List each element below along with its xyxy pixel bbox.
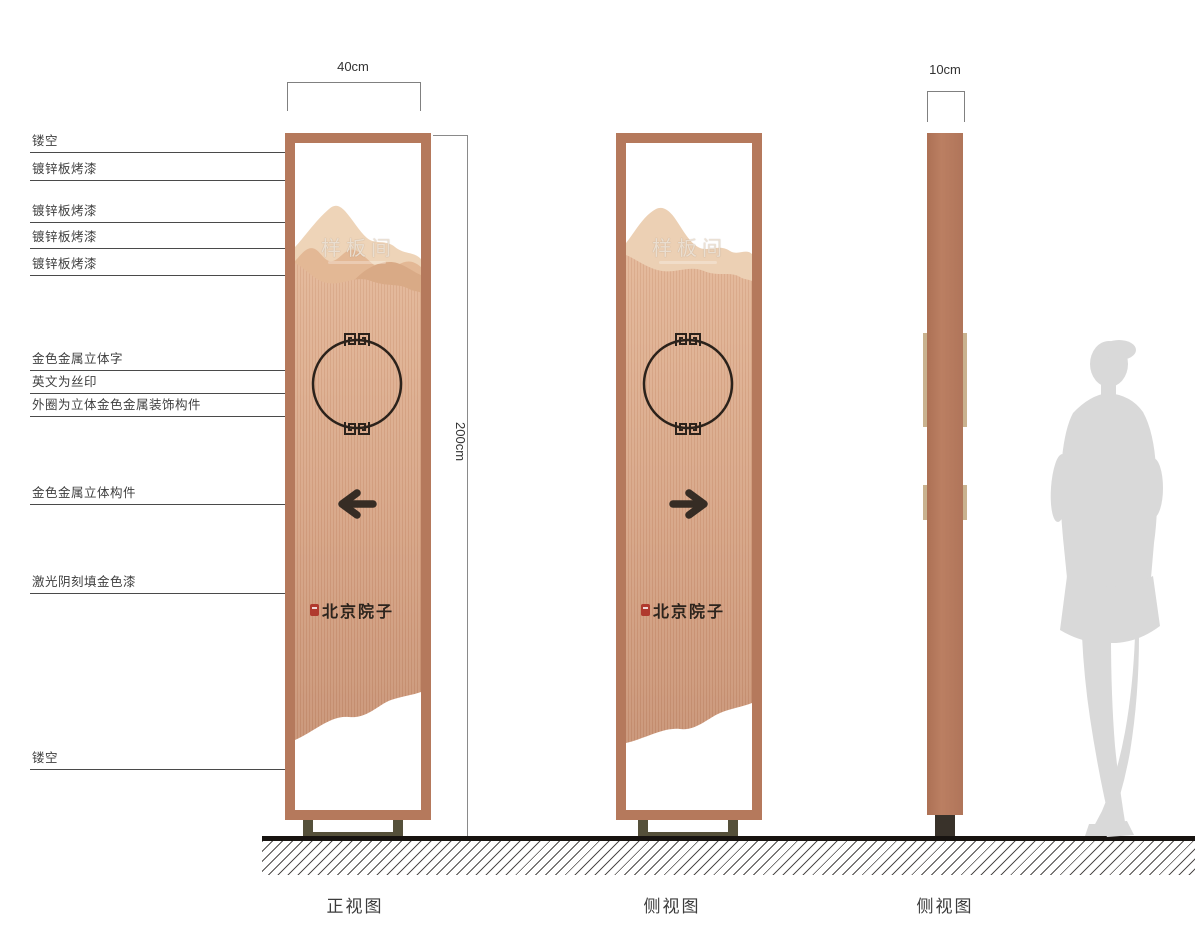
callout-galvanized-1: 镀锌板烤漆 xyxy=(30,158,286,181)
front-view-sign-frame: 样板间 北京院子 xyxy=(285,133,431,820)
caption-side-view-2: 侧视图 xyxy=(905,892,985,917)
caption-side-view-1: 侧视图 xyxy=(632,892,712,917)
profile-arrow-protrusion-right xyxy=(963,485,967,520)
callout-label: 镀锌板烤漆 xyxy=(32,226,97,245)
profile-ring-protrusion-right xyxy=(963,333,967,427)
side-room-name: 样板间 xyxy=(652,232,727,261)
callout-hollow-bottom: 镂空 xyxy=(30,747,305,770)
human-silhouette-figure xyxy=(1035,338,1185,838)
front-room-name: 样板间 xyxy=(321,232,396,261)
callout-label: 金色金属立体字 xyxy=(32,348,123,367)
callout-galvanized-4: 镀锌板烤漆 xyxy=(30,253,293,276)
front-brand-name: 北京院子 xyxy=(322,598,394,622)
brand-seal-icon xyxy=(641,604,650,616)
callout-label: 外圈为立体金色金属装饰构件 xyxy=(32,394,201,413)
front-brand-logo: 北京院子 xyxy=(310,598,394,622)
dimension-side-depth-bracket xyxy=(927,91,965,122)
signage-design-sheet: 镂空 镀锌板烤漆 镀锌板烤漆 镀锌板烤漆 镀锌板烤漆 金色金属立体字 英文为丝印… xyxy=(0,0,1195,927)
dimension-side-depth-label: 10cm xyxy=(895,62,995,77)
front-room-subtext-silkscreen xyxy=(328,261,386,264)
side-brand-logo: 北京院子 xyxy=(641,598,725,622)
dimension-height-tick xyxy=(433,135,467,136)
callout-silkscreen: 英文为丝印 xyxy=(30,371,328,394)
callout-label: 镂空 xyxy=(32,130,58,149)
side-room-subtext-silkscreen xyxy=(659,261,717,264)
dimension-height-label: 200cm xyxy=(453,422,468,461)
profile-ring-protrusion-left xyxy=(923,333,927,427)
callout-label: 镀锌板烤漆 xyxy=(32,253,97,272)
callout-label: 英文为丝印 xyxy=(32,371,97,390)
profile-view-bar xyxy=(927,133,963,815)
profile-arrow-protrusion-left xyxy=(923,485,927,520)
callout-galvanized-2: 镀锌板烤漆 xyxy=(30,200,326,223)
callout-label: 激光阴刻填金色漆 xyxy=(32,571,136,590)
profile-view-base xyxy=(935,815,955,837)
caption-front-view: 正视图 xyxy=(315,892,395,917)
callout-label: 镂空 xyxy=(32,747,58,766)
dimension-front-width-label: 40cm xyxy=(303,59,403,74)
brand-seal-icon xyxy=(310,604,319,616)
side-brand-name: 北京院子 xyxy=(653,598,725,622)
ground-hatch-pattern xyxy=(262,841,1195,875)
callout-label: 镀锌板烤漆 xyxy=(32,200,97,219)
callout-label: 金色金属立体构件 xyxy=(32,482,136,501)
callout-galvanized-3: 镀锌板烤漆 xyxy=(30,226,290,249)
callout-ring-decoration: 外圈为立体金色金属装饰构件 xyxy=(30,394,318,417)
dimension-height-line xyxy=(467,135,468,836)
callout-label: 镀锌板烤漆 xyxy=(32,158,97,177)
callout-hollow-top: 镂空 xyxy=(30,130,307,153)
dimension-front-width-bracket xyxy=(287,82,421,111)
side-view-sign-frame: 样板间 北京院子 xyxy=(616,133,762,820)
